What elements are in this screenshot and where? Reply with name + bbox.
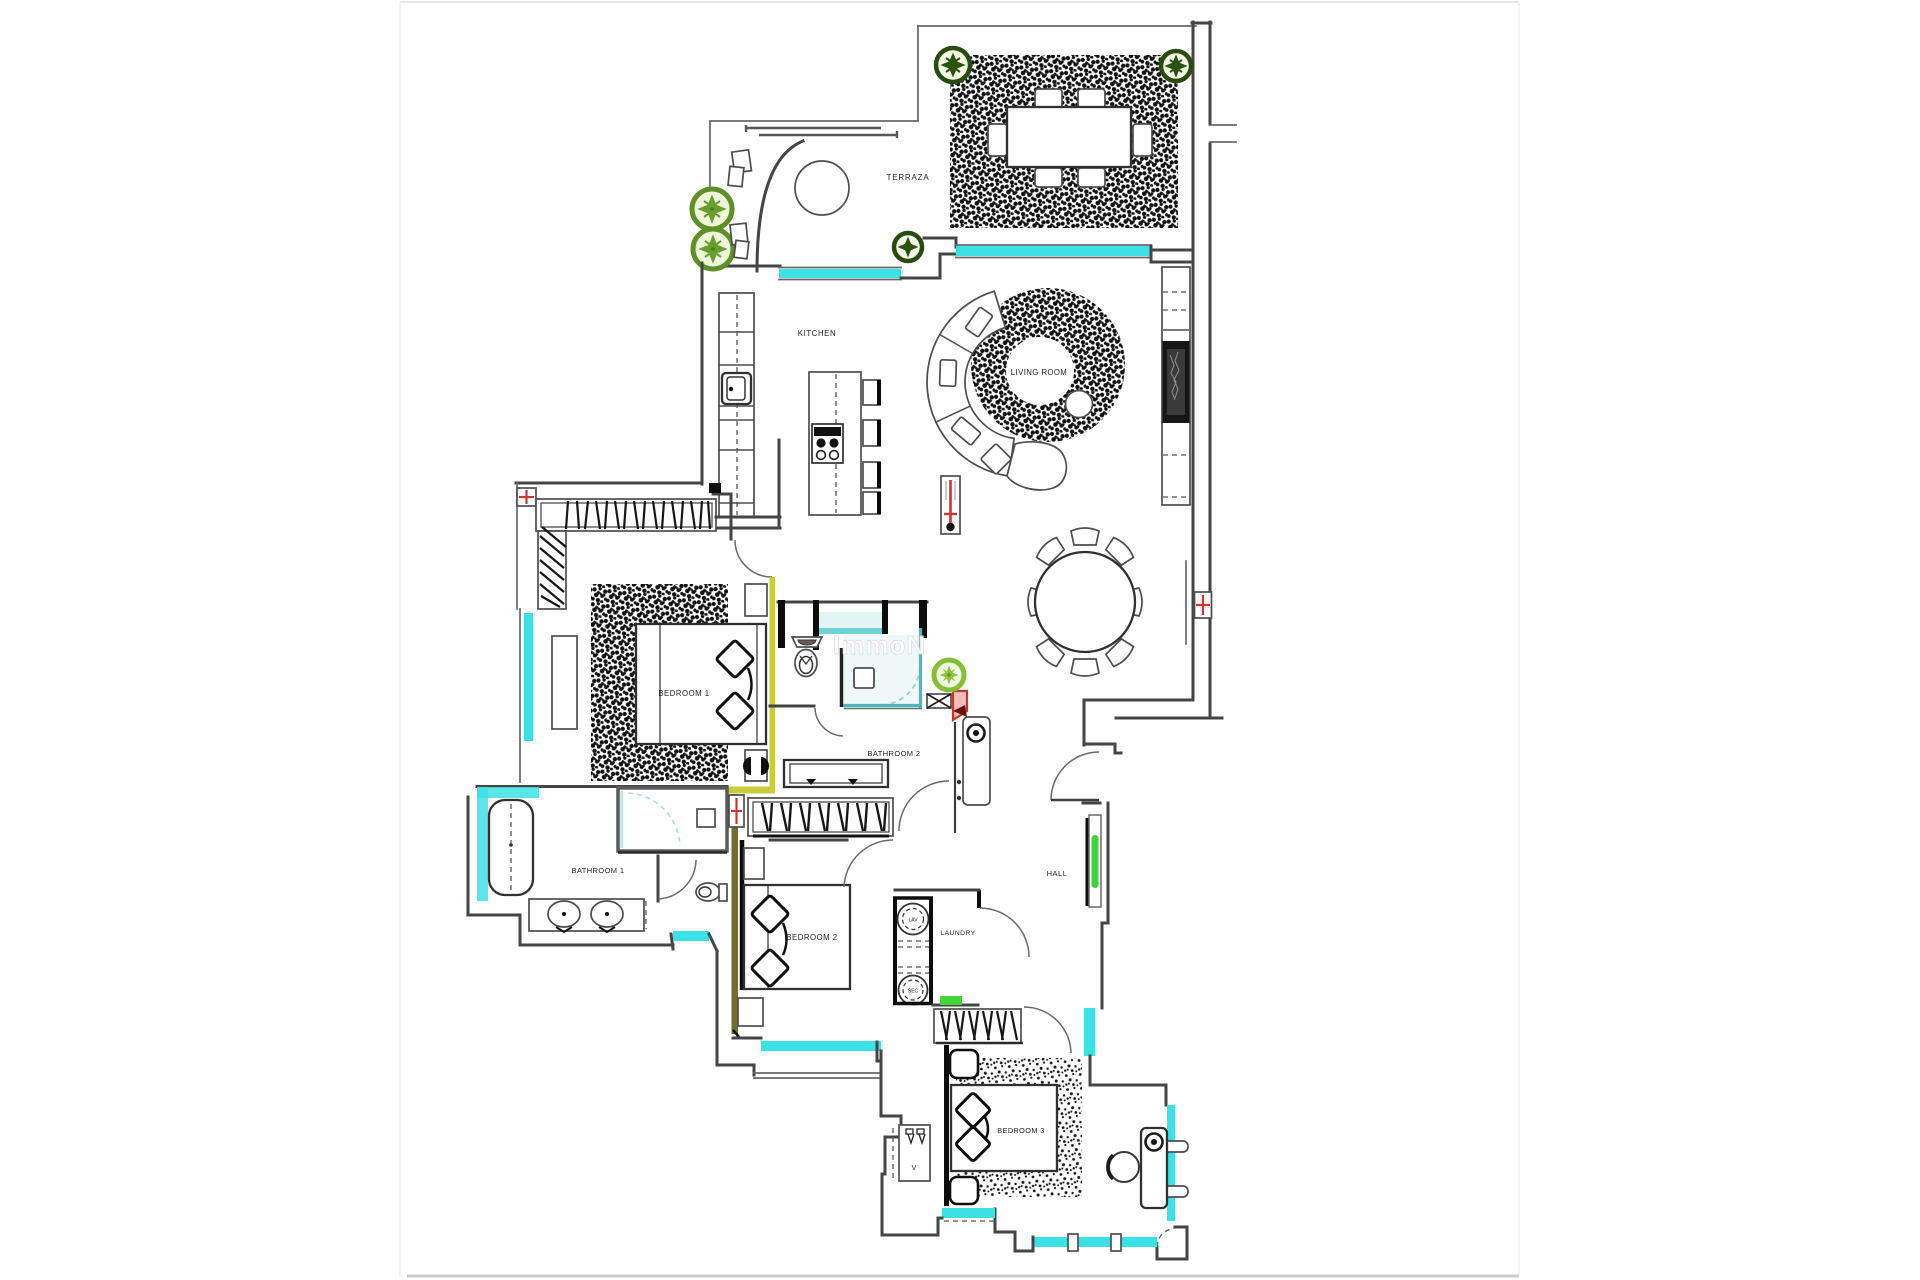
svg-text:BEDROOM 3: BEDROOM 3 (997, 1126, 1044, 1135)
svg-text:ImmoN: ImmoN (833, 630, 926, 660)
svg-text:SEC: SEC (908, 989, 919, 995)
svg-text:HALL: HALL (1047, 869, 1068, 878)
svg-text:TERRAZA: TERRAZA (887, 173, 930, 182)
svg-text:BATHROOM 2: BATHROOM 2 (867, 749, 920, 758)
svg-text:LIVING ROOM: LIVING ROOM (1011, 368, 1067, 377)
svg-text:V: V (912, 1165, 917, 1172)
svg-text:BEDROOM 2: BEDROOM 2 (786, 933, 837, 942)
svg-text:LAUNDRY: LAUNDRY (940, 930, 975, 937)
svg-text:KITCHEN: KITCHEN (798, 329, 836, 338)
svg-text:BATHROOM 1: BATHROOM 1 (571, 866, 624, 875)
svg-text:LAV: LAV (908, 918, 918, 924)
svg-text:BEDROOM 1: BEDROOM 1 (658, 689, 709, 698)
